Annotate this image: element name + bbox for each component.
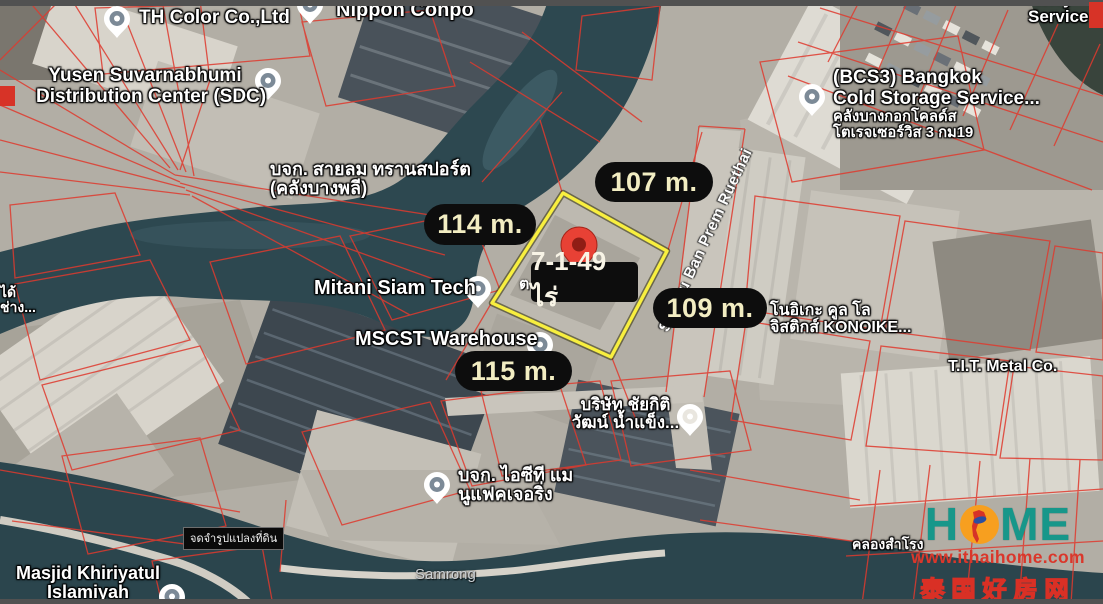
poi-sailom-transport[interactable]: บจก. สายลม ทรานสปอร์ต (คลังบางพลี)	[270, 160, 471, 199]
map-partial-glyph: ต	[519, 272, 529, 297]
brand-letter-h: H	[925, 501, 959, 547]
poi-konoike[interactable]: โนอิเกะ คูล โล จิสติกส์ KONOIKE...	[770, 302, 911, 337]
corner-sticker-icon	[1089, 2, 1103, 28]
poi-pin-icon[interactable]	[104, 6, 130, 38]
poi-tit-metal[interactable]: T.I.T. Metal Co.	[948, 358, 1057, 375]
measure-pill-north: 107 m.	[595, 162, 713, 202]
district-label: Samrong	[415, 566, 476, 583]
poi-masjid[interactable]: Masjid Khiriyatul Islamiyah	[8, 564, 168, 603]
poi-ict-manufacturing[interactable]: บจก. ไอซีที แม นูแฟคเจอริ่ง	[458, 466, 573, 505]
edge-sticker-icon	[0, 86, 15, 106]
poi-th-color[interactable]: TH Color Co.,Ltd	[139, 8, 290, 29]
area-label: 7-1-49 ไร่	[531, 262, 638, 302]
bottom-frame-strip	[0, 599, 1103, 604]
poi-left-edge-partial[interactable]: ได้ ช่าง...	[0, 285, 36, 315]
brand-watermark: H ME www.ithaihome.com 泰国好房网	[898, 501, 1098, 604]
measure-pill-south: 115 m.	[455, 351, 572, 391]
brand-url: www.ithaihome.com	[898, 547, 1098, 568]
poi-bcs3-cold-storage[interactable]: (BCS3) Bangkok Cold Storage Service... ค…	[833, 68, 1040, 141]
poi-pin-icon[interactable]	[424, 472, 450, 504]
poi-mscst-warehouse[interactable]: MSCST Warehouse	[355, 329, 538, 351]
brand-letter-me: ME	[1000, 501, 1071, 547]
poi-pin-icon[interactable]	[799, 84, 825, 116]
poi-yusen-sdc[interactable]: Yusen Suvarnabhumi Distribution Center (…	[36, 66, 254, 107]
note-label: จดจำรูปแปลงที่ดิน	[183, 527, 284, 550]
brand-logo: H ME	[898, 501, 1098, 547]
poi-mitani-siam-tech[interactable]: Mitani Siam Tech	[314, 278, 476, 300]
poi-chaikiti-ice[interactable]: บริษัท ชัยกิติ วัฒน์ น้ำแข็ง...	[568, 396, 683, 433]
measure-pill-east: 109 m.	[653, 288, 767, 328]
thailand-map-icon	[960, 505, 999, 544]
map-canvas[interactable]: Soi Mu Ban Prem Ruethai TH Color Co.,Ltd…	[0, 0, 1103, 604]
measure-pill-west: 114 m.	[424, 204, 536, 245]
top-frame-strip	[0, 0, 1103, 6]
